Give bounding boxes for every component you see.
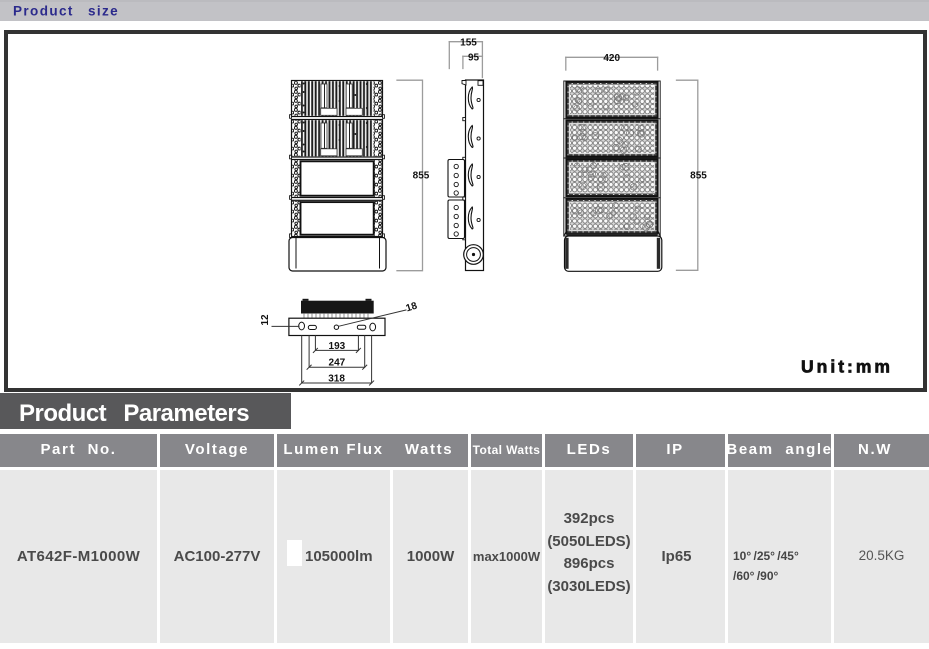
- svg-text:193: 193: [329, 341, 346, 352]
- svg-text:18: 18: [405, 300, 419, 314]
- svg-text:95: 95: [468, 52, 480, 63]
- svg-text:12: 12: [260, 314, 271, 326]
- svg-text:155: 155: [460, 38, 477, 49]
- svg-text:855: 855: [413, 171, 430, 182]
- svg-text:247: 247: [329, 358, 346, 369]
- svg-text:Unit:mm: Unit:mm: [801, 357, 893, 377]
- svg-text:420: 420: [603, 53, 620, 64]
- svg-text:855: 855: [690, 171, 707, 182]
- svg-text:318: 318: [328, 374, 345, 385]
